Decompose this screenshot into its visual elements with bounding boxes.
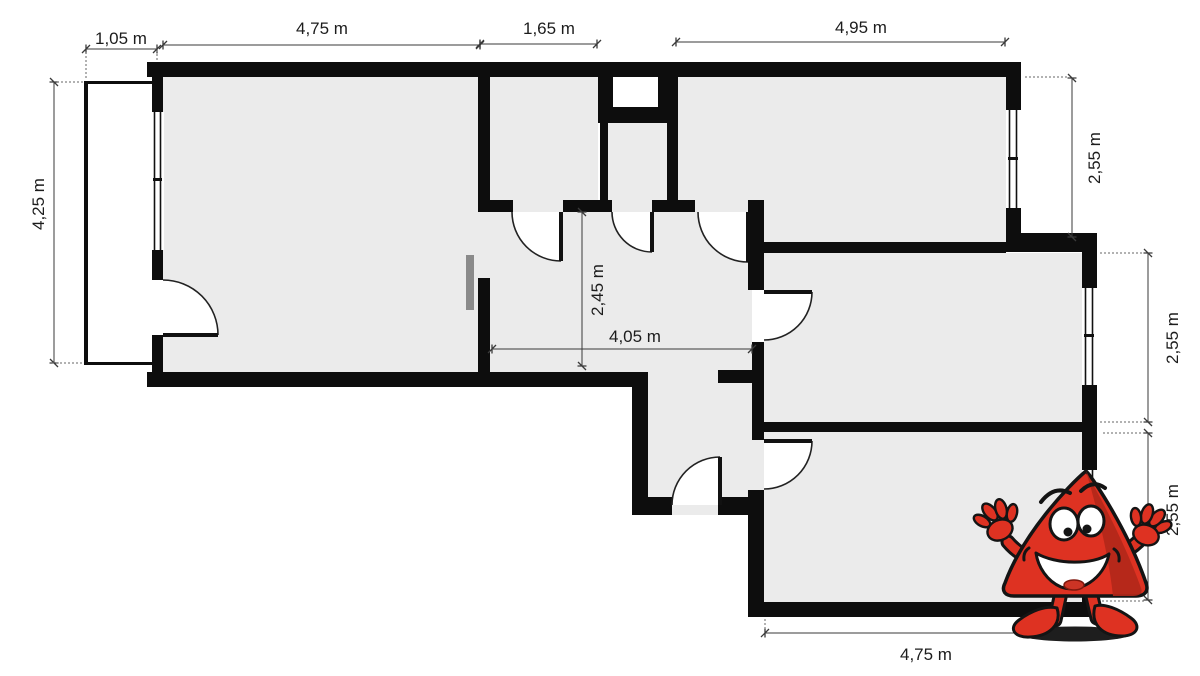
- bedroom-middle-floor: [764, 253, 1082, 422]
- wall-segment: [1082, 252, 1097, 288]
- floorplan-svg: 1,05 m 4,75 m 1,65 m 4,95 m 4,25 m 2,55 …: [0, 0, 1200, 676]
- wall-segment: [1082, 432, 1097, 470]
- mascot-tongue: [1064, 580, 1084, 590]
- mascot-eye: [1078, 506, 1104, 536]
- dim-label-hallway-depth: 2,45 m: [588, 264, 607, 316]
- dim-label-bedroom-top-width: 4,95 m: [835, 18, 887, 37]
- dim-label-left-side-height: 4,25 m: [29, 178, 48, 230]
- wall-segment: [84, 81, 88, 365]
- wall-segment: [152, 70, 163, 112]
- wall-segment: [667, 62, 678, 212]
- dim-label-bedroom-top-height: 2,55 m: [1085, 132, 1104, 184]
- wall-segment: [748, 490, 764, 617]
- wall-segment: [1006, 208, 1021, 240]
- wall-segment: [152, 250, 163, 280]
- dim-label-living-room-width: 4,75 m: [296, 19, 348, 38]
- dim-label-hallway-width: 4,05 m: [609, 327, 661, 346]
- wall-segment: [478, 200, 513, 212]
- dim-label-bedroom-bottom-width: 4,75 m: [900, 645, 952, 664]
- dim-label-bedroom-middle-height: 2,55 m: [1163, 312, 1182, 364]
- mascot-eye: [1050, 508, 1078, 540]
- wall-segment: [632, 372, 648, 515]
- wall-segment: [147, 62, 1021, 77]
- floorplan-page: 1,05 m 4,75 m 1,65 m 4,95 m 4,25 m 2,55 …: [0, 0, 1200, 676]
- shaft-niche: [613, 77, 658, 107]
- wall-segment: [84, 362, 152, 365]
- wall-segment: [757, 242, 1006, 253]
- wall-segment: [752, 422, 1097, 432]
- mascot-pupil: [1083, 525, 1092, 534]
- wc-floor: [607, 123, 667, 212]
- wall-segment: [718, 370, 764, 383]
- wall-segment: [147, 372, 647, 387]
- wall-segment: [652, 200, 695, 212]
- radiator: [466, 255, 474, 310]
- window-bedroom-middle: [1082, 288, 1097, 385]
- wall-segment: [563, 200, 612, 212]
- wall-segment: [632, 497, 672, 515]
- mascot-pupil: [1064, 528, 1073, 537]
- window-living-room: [151, 112, 164, 250]
- wall-segment: [478, 278, 490, 372]
- dim-label-bathroom-width: 1,65 m: [523, 19, 575, 38]
- wall-segment: [478, 77, 490, 212]
- wall-segment: [84, 81, 152, 84]
- window-bedroom-top: [1006, 110, 1021, 208]
- wall-segment: [1006, 62, 1021, 110]
- wall-segment: [600, 123, 608, 212]
- bathroom-floor: [490, 77, 598, 212]
- dim-label-balcony-width: 1,05 m: [95, 29, 147, 48]
